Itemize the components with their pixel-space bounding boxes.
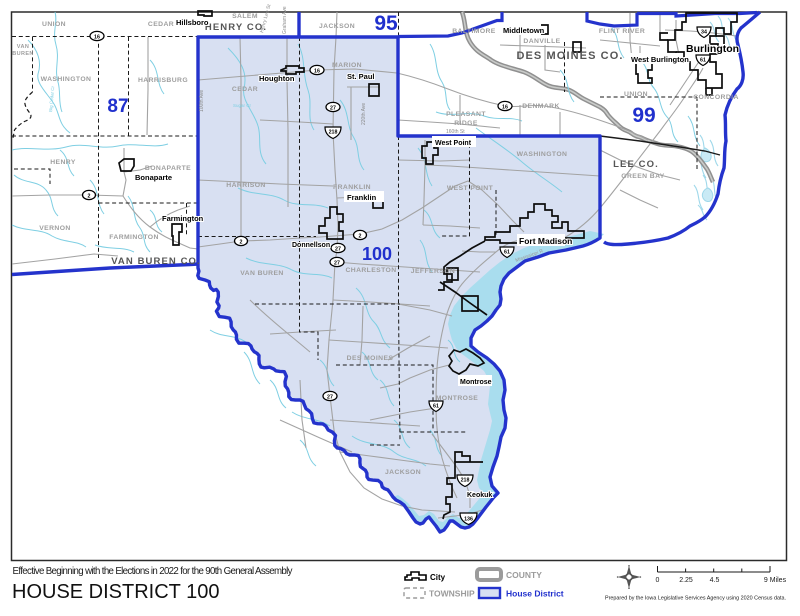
svg-text:27: 27 xyxy=(327,394,333,400)
svg-text:JEFFERSON: JEFFERSON xyxy=(411,268,455,275)
svg-text:Fort Madison: Fort Madison xyxy=(519,236,572,246)
svg-text:BONAPARTE: BONAPARTE xyxy=(145,165,191,172)
svg-text:Prepared by the Iowa Legislati: Prepared by the Iowa Legislative Service… xyxy=(605,596,786,602)
svg-text:61: 61 xyxy=(504,249,510,255)
svg-text:Sugar Cr: Sugar Cr xyxy=(233,103,252,108)
svg-text:9 Miles: 9 Miles xyxy=(764,577,787,584)
svg-text:WASHINGTON: WASHINGTON xyxy=(517,151,568,158)
svg-text:JACKSON: JACKSON xyxy=(319,23,355,30)
svg-text:2: 2 xyxy=(240,239,243,245)
svg-text:218: 218 xyxy=(461,478,470,484)
svg-text:TOWNSHIP: TOWNSHIP xyxy=(429,589,475,599)
svg-text:MARION: MARION xyxy=(332,62,362,69)
svg-text:HARRISON: HARRISON xyxy=(226,182,265,189)
svg-text:Bonaparte: Bonaparte xyxy=(135,173,172,182)
svg-text:FARMINGTON: FARMINGTON xyxy=(109,234,159,241)
svg-text:DANVILLE: DANVILLE xyxy=(523,38,560,45)
svg-text:RIDGE: RIDGE xyxy=(454,120,478,127)
svg-text:61: 61 xyxy=(700,57,706,63)
svg-text:Farmington: Farmington xyxy=(162,214,204,223)
svg-text:61: 61 xyxy=(433,403,439,409)
svg-text:95: 95 xyxy=(374,12,398,35)
svg-text:WEST POINT: WEST POINT xyxy=(447,185,494,192)
svg-text:DENMARK: DENMARK xyxy=(522,103,560,110)
svg-text:West Burlington: West Burlington xyxy=(631,55,689,64)
svg-text:FLINT RIVER: FLINT RIVER xyxy=(599,28,645,35)
svg-text:VAN: VAN xyxy=(17,44,29,50)
svg-text:St. Paul: St. Paul xyxy=(347,72,375,81)
svg-text:BUREN: BUREN xyxy=(12,51,34,57)
svg-text:Houghton: Houghton xyxy=(259,74,295,83)
svg-text:Middletown: Middletown xyxy=(503,26,545,35)
svg-text:2.25: 2.25 xyxy=(679,577,693,584)
svg-text:Effective Beginning with the E: Effective Beginning with the Elections i… xyxy=(13,566,293,577)
svg-text:Donnellson: Donnellson xyxy=(292,242,330,249)
svg-text:Franklin: Franklin xyxy=(347,193,377,202)
svg-text:GREEN BAY: GREEN BAY xyxy=(621,173,664,180)
svg-text:UNION: UNION xyxy=(624,91,648,98)
svg-text:27: 27 xyxy=(330,105,336,111)
svg-text:DES MOINES CO.: DES MOINES CO. xyxy=(516,50,623,62)
svg-text:Burlington: Burlington xyxy=(686,43,739,55)
svg-text:VERNON: VERNON xyxy=(39,225,70,232)
svg-text:SALEM: SALEM xyxy=(232,13,258,20)
svg-text:FRANKLIN: FRANKLIN xyxy=(333,184,371,191)
svg-text:16: 16 xyxy=(502,104,508,110)
svg-text:CEDAR: CEDAR xyxy=(148,21,174,28)
svg-text:VAN BUREN: VAN BUREN xyxy=(240,270,284,277)
svg-text:34: 34 xyxy=(701,29,707,35)
svg-text:Montrose: Montrose xyxy=(460,379,492,386)
svg-text:87: 87 xyxy=(107,96,128,117)
svg-text:HARRISBURG: HARRISBURG xyxy=(138,77,188,84)
svg-text:PLEASANT: PLEASANT xyxy=(446,111,486,118)
svg-text:16: 16 xyxy=(314,68,320,74)
svg-text:BALTIMORE: BALTIMORE xyxy=(452,28,496,35)
svg-text:CEDAR: CEDAR xyxy=(232,86,258,93)
svg-text:Hillsboro: Hillsboro xyxy=(176,18,209,27)
svg-text:HENRY CO.: HENRY CO. xyxy=(205,22,267,33)
svg-text:100: 100 xyxy=(362,244,392,264)
svg-text:JACKSON: JACKSON xyxy=(385,469,421,476)
svg-text:100th Ave: 100th Ave xyxy=(199,90,205,112)
svg-text:HOUSE DISTRICT 100: HOUSE DISTRICT 100 xyxy=(12,581,219,603)
svg-text:HENRY: HENRY xyxy=(50,159,76,166)
svg-text:WASHINGTON: WASHINGTON xyxy=(41,76,92,83)
svg-text:27: 27 xyxy=(334,260,340,266)
svg-text:CHARLESTON: CHARLESTON xyxy=(345,267,396,274)
svg-text:4.5: 4.5 xyxy=(710,577,720,584)
svg-text:27: 27 xyxy=(335,246,341,252)
svg-text:2: 2 xyxy=(88,193,91,199)
svg-text:CONCORDIA: CONCORDIA xyxy=(693,94,739,101)
svg-text:220th Ave: 220th Ave xyxy=(361,103,367,125)
svg-text:2: 2 xyxy=(359,233,362,239)
svg-text:MONTROSE: MONTROSE xyxy=(436,395,479,402)
svg-text:LEE CO.: LEE CO. xyxy=(613,159,659,170)
svg-text:136: 136 xyxy=(464,516,473,522)
svg-text:218: 218 xyxy=(329,130,338,136)
svg-text:99: 99 xyxy=(632,104,655,127)
svg-text:House District: House District xyxy=(506,589,564,599)
svg-text:160th St: 160th St xyxy=(446,129,465,135)
svg-text:VAN BUREN CO.: VAN BUREN CO. xyxy=(111,256,201,267)
svg-text:Keokuk: Keokuk xyxy=(467,492,492,499)
svg-text:COUNTY: COUNTY xyxy=(506,570,542,580)
svg-text:Graham Ave: Graham Ave xyxy=(282,6,288,34)
svg-text:DES MOINES: DES MOINES xyxy=(347,355,394,362)
svg-text:UNION: UNION xyxy=(42,21,66,28)
svg-text:16: 16 xyxy=(94,34,100,40)
svg-text:City: City xyxy=(430,573,446,582)
svg-text:0: 0 xyxy=(656,577,660,584)
svg-text:West Point: West Point xyxy=(435,140,472,147)
